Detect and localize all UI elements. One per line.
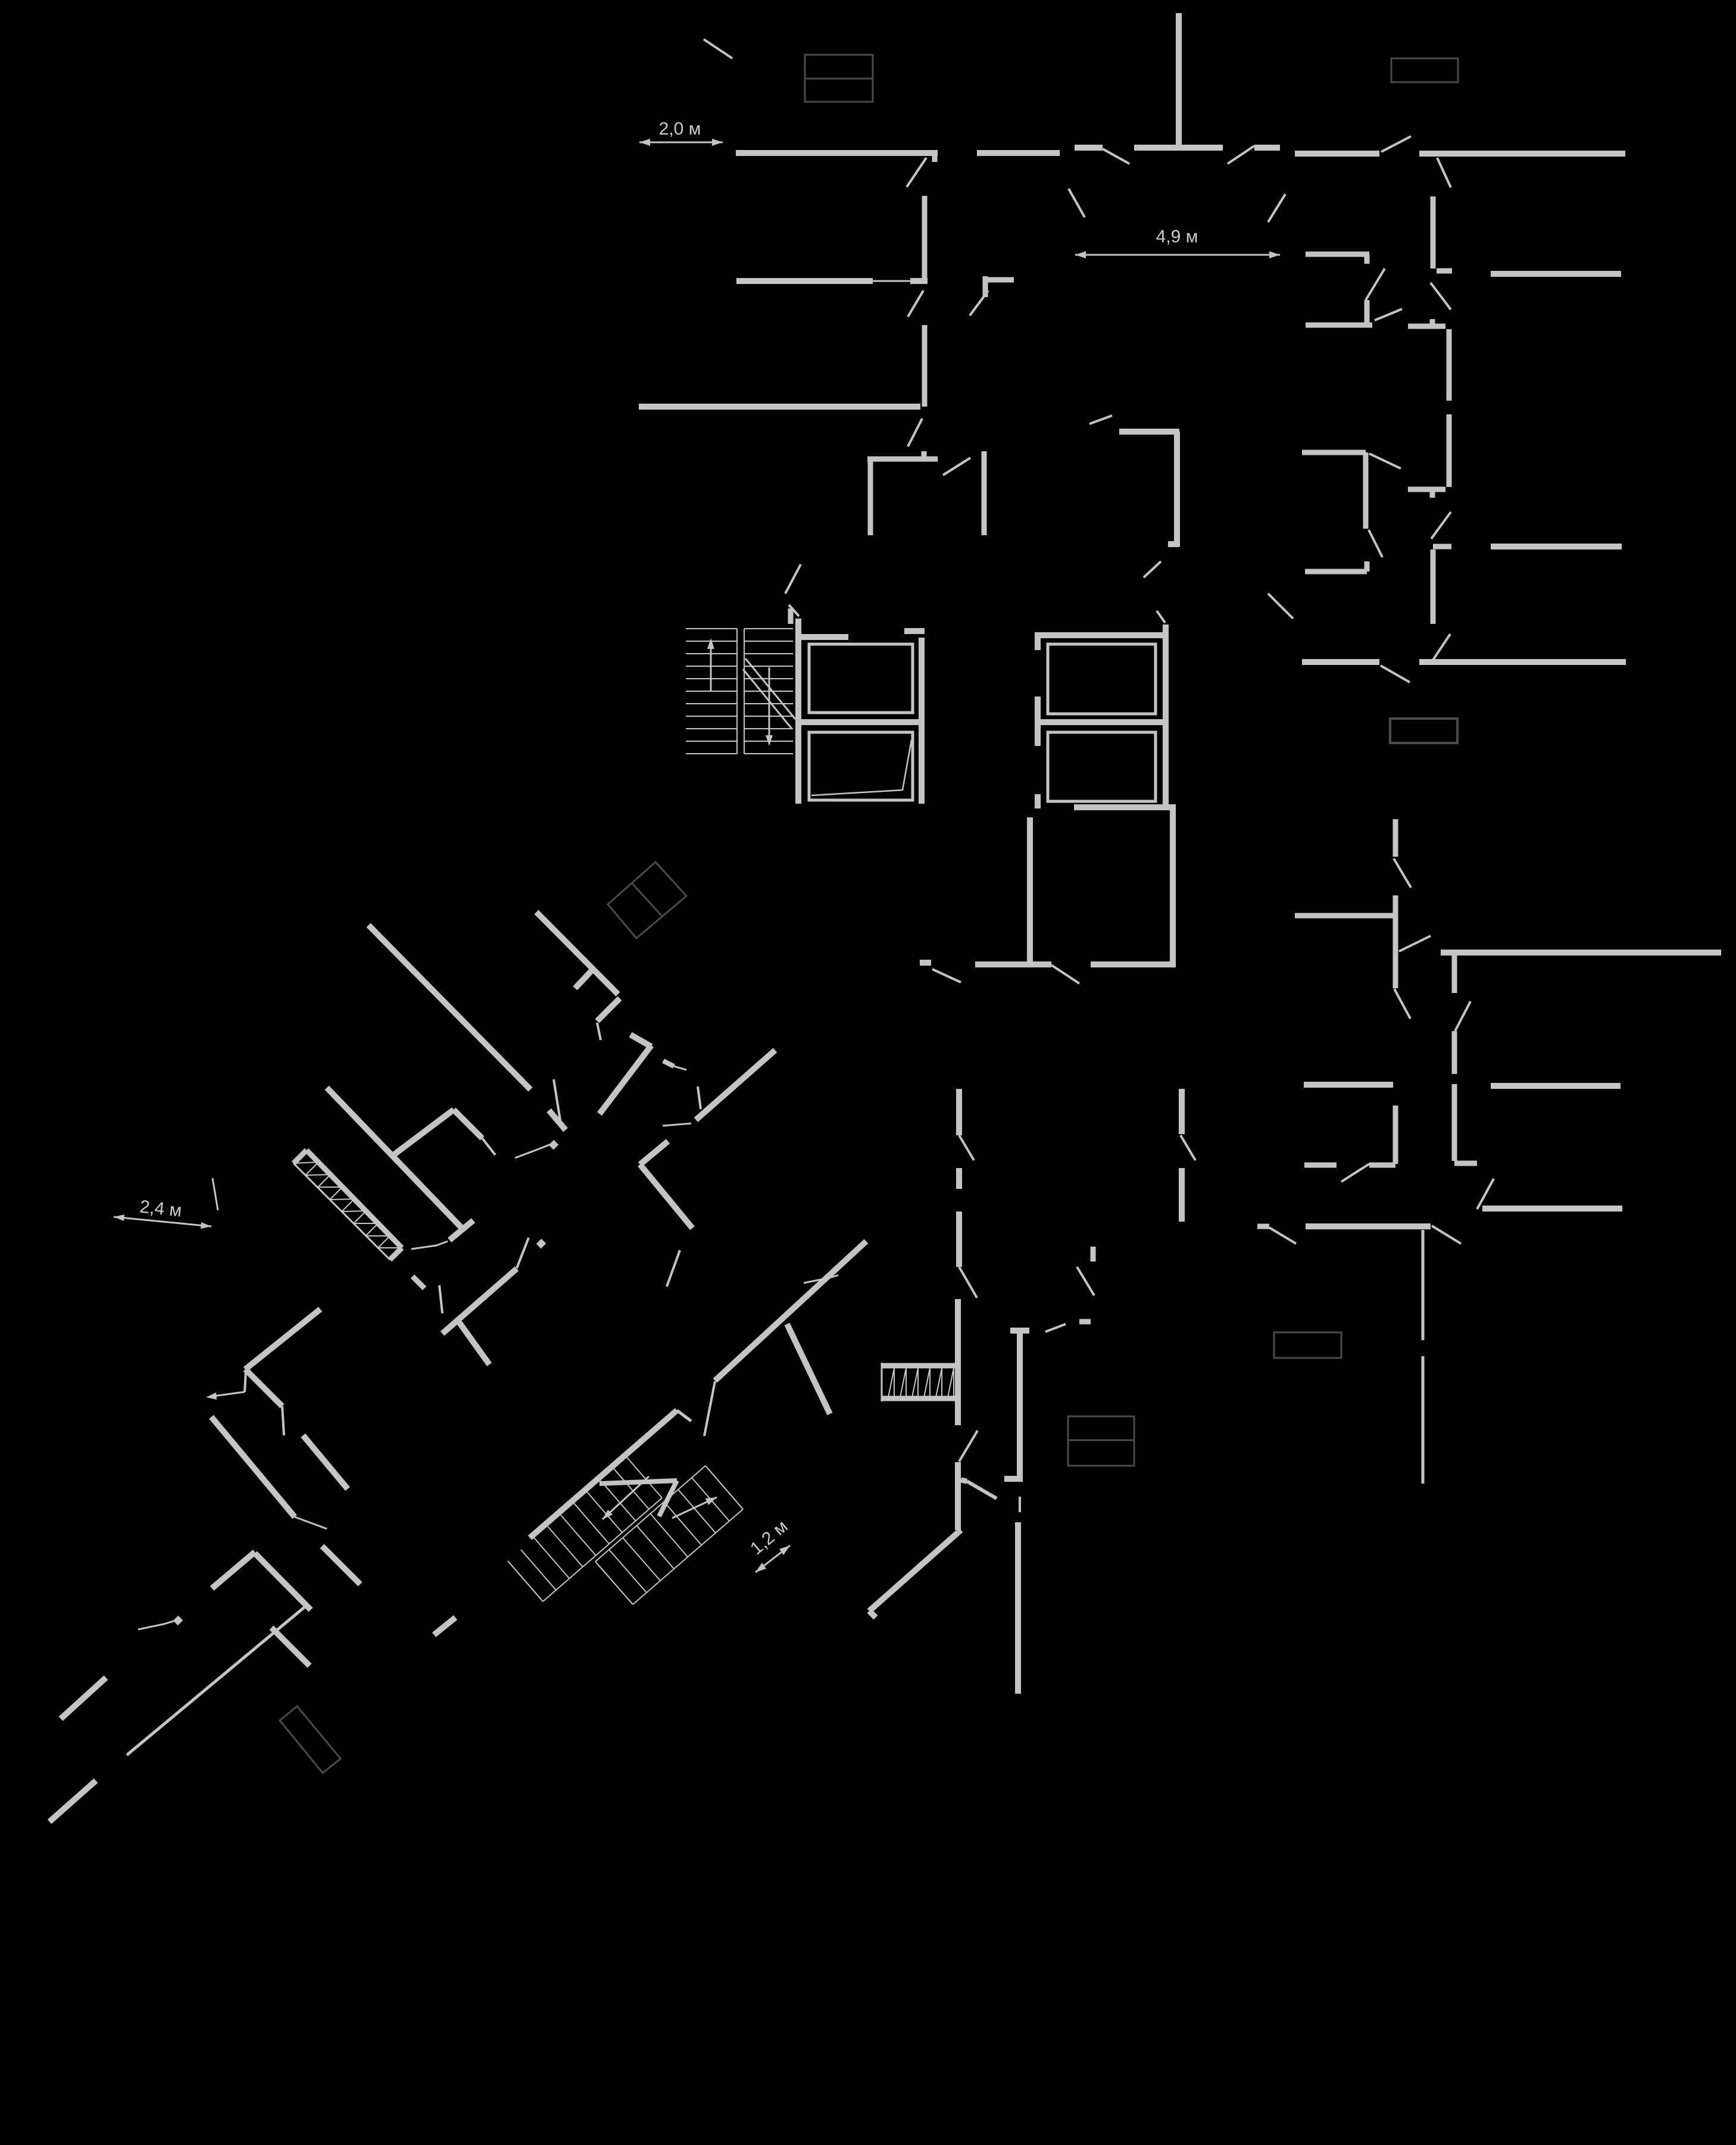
svg-text:4,9 м: 4,9 м (1156, 227, 1198, 246)
svg-text:2,0 м: 2,0 м (659, 119, 701, 139)
